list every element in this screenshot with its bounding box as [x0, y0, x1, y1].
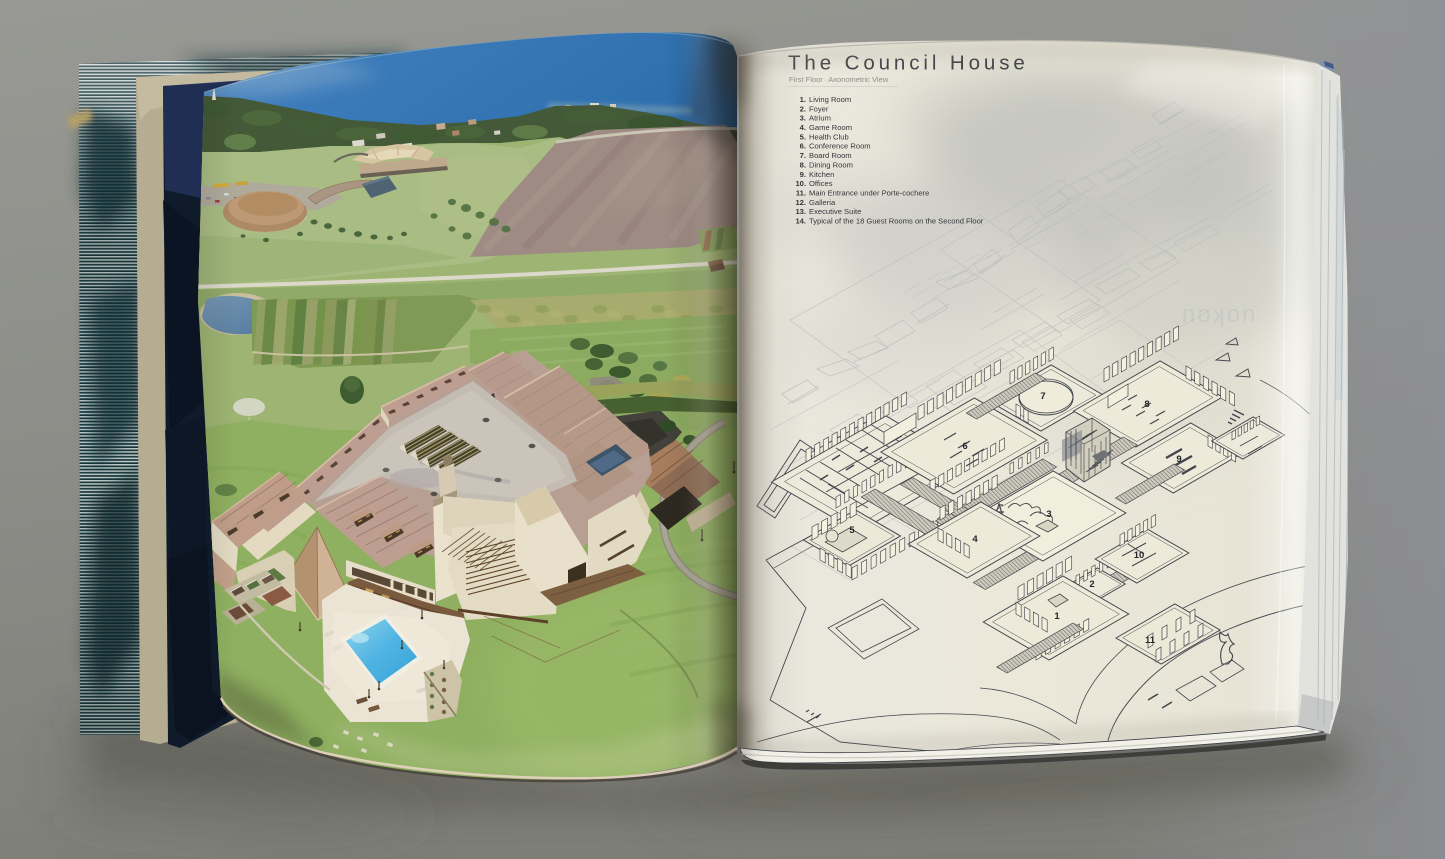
svg-text:9: 9 [1176, 454, 1181, 465]
svg-text:4: 4 [972, 534, 978, 545]
svg-text:9.: 9. [800, 170, 806, 179]
svg-text:Conference Room: Conference Room [809, 142, 871, 151]
svg-text:10: 10 [1134, 550, 1145, 561]
svg-text:5: 5 [849, 525, 855, 536]
svg-text:1: 1 [1054, 611, 1060, 622]
svg-text:Offices: Offices [809, 179, 833, 188]
svg-text:6: 6 [962, 441, 967, 452]
svg-text:5.: 5. [800, 132, 806, 141]
svg-text:3.: 3. [800, 114, 806, 123]
svg-text:3: 3 [1046, 509, 1051, 520]
svg-text:noʞon: noʞon [1182, 301, 1257, 328]
svg-text:7: 7 [1040, 391, 1045, 402]
svg-text:First Floor · Axonometric View: First Floor · Axonometric View [789, 75, 889, 84]
svg-text:14.: 14. [795, 217, 806, 226]
svg-text:11.: 11. [796, 189, 806, 198]
svg-text:Galleria: Galleria [809, 198, 836, 207]
svg-text:Dining Room: Dining Room [809, 160, 853, 169]
svg-text:Atrium: Atrium [809, 114, 831, 123]
svg-text:Executive Suite: Executive Suite [809, 207, 861, 216]
svg-text:8: 8 [1144, 399, 1149, 410]
svg-text:Kitchen: Kitchen [809, 170, 834, 179]
svg-text:1.: 1. [800, 95, 806, 104]
svg-text:Foyer: Foyer [809, 104, 829, 113]
svg-text:2.: 2. [800, 104, 806, 113]
svg-text:12.: 12. [795, 198, 806, 207]
svg-text:Main Entrance under Porte-coch: Main Entrance under Porte-cochere [809, 189, 929, 198]
svg-text:10.: 10. [795, 179, 806, 188]
svg-text:Board Room: Board Room [809, 151, 852, 160]
svg-text:13.: 13. [795, 207, 806, 216]
svg-text:Health Club: Health Club [809, 132, 849, 141]
svg-text:8.: 8. [800, 160, 806, 169]
svg-text:6.: 6. [800, 142, 806, 151]
svg-text:Typical of the 18 Guest Rooms: Typical of the 18 Guest Rooms on the Sec… [809, 217, 984, 226]
svg-text:2: 2 [1089, 579, 1094, 590]
svg-text:7.: 7. [800, 151, 806, 160]
svg-text:Living Room: Living Room [809, 95, 851, 104]
svg-text:Game Room: Game Room [809, 123, 852, 132]
svg-text:11: 11 [1145, 635, 1156, 646]
svg-text:4.: 4. [800, 123, 806, 132]
